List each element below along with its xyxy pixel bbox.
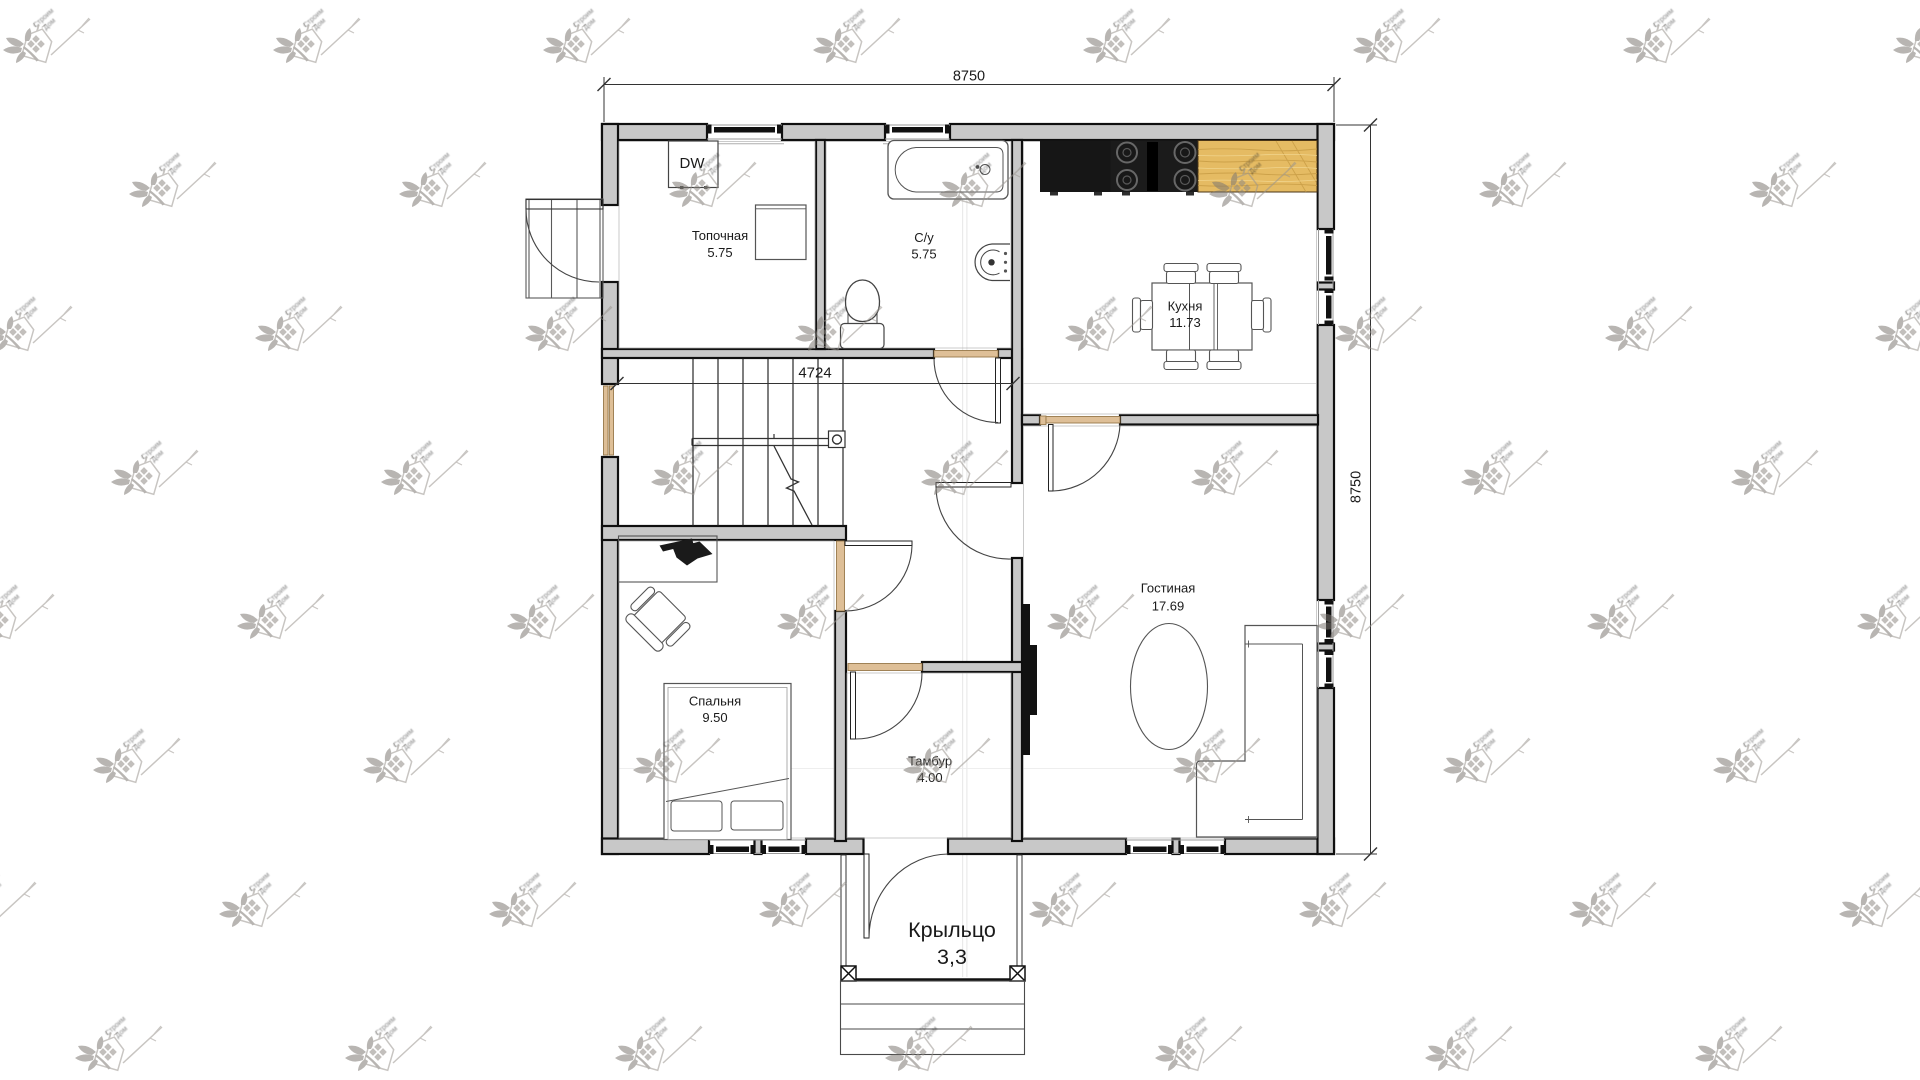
svg-text:Топочная: Топочная: [692, 228, 748, 243]
svg-text:11.73: 11.73: [1169, 315, 1201, 330]
svg-text:3,3: 3,3: [937, 945, 967, 969]
svg-text:Спальня: Спальня: [689, 694, 741, 709]
svg-text:5.75: 5.75: [911, 247, 936, 262]
svg-text:8750: 8750: [1349, 471, 1365, 503]
svg-text:Кухня: Кухня: [1168, 299, 1203, 314]
svg-text:8750: 8750: [953, 69, 985, 85]
svg-text:Гостиная: Гостиная: [1141, 581, 1196, 596]
svg-text:17.69: 17.69: [1152, 599, 1185, 614]
svg-text:9.50: 9.50: [702, 710, 727, 725]
svg-text:С/у: С/у: [914, 230, 934, 245]
svg-text:5.75: 5.75: [707, 245, 732, 260]
svg-text:4724: 4724: [798, 365, 831, 382]
svg-text:Крыльцо: Крыльцо: [908, 918, 996, 942]
